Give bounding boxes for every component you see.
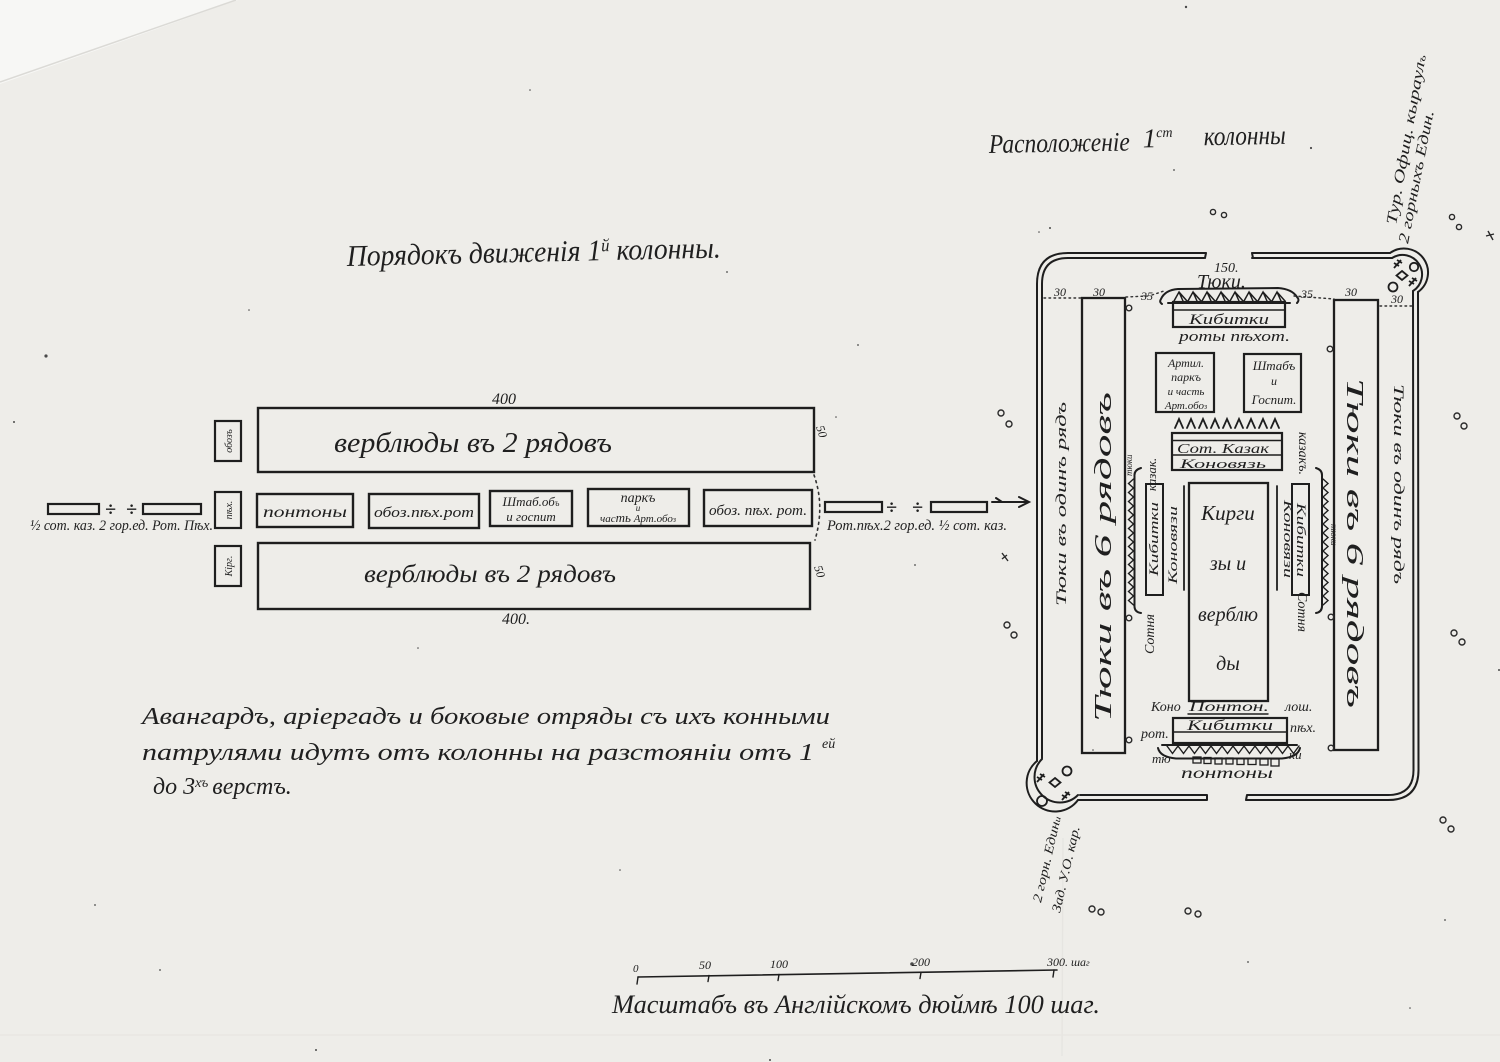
svg-text:Тюки въ одинъ рядъ: Тюки въ одинъ рядъ: [1054, 402, 1070, 606]
svg-text:зы и: зы и: [1209, 553, 1246, 575]
svg-text:Сотня: Сотня: [1294, 592, 1309, 632]
svg-text:Кибитки: Кибитки: [1188, 312, 1269, 328]
svg-text:30: 30: [1344, 285, 1357, 299]
svg-text:Авангардъ, аріергадъ и боковые: Авангардъ, аріергадъ и боковые отряды съ…: [140, 704, 830, 730]
svg-text:÷: ÷: [886, 497, 897, 519]
svg-text:Госпит.: Госпит.: [1251, 392, 1297, 407]
svg-text:тю: тю: [1152, 751, 1171, 766]
svg-text:пѣх.: пѣх.: [224, 501, 235, 520]
svg-text:роты пѣхот.: роты пѣхот.: [1178, 329, 1290, 345]
svg-text:Кірг.: Кірг.: [224, 556, 235, 578]
svg-text:ды: ды: [1216, 653, 1240, 675]
svg-text:35: 35: [1300, 287, 1313, 301]
svg-text:верблюды въ 2 рядовъ: верблюды въ 2 рядовъ: [334, 428, 612, 459]
svg-text:колонны: колонны: [1203, 120, 1286, 151]
svg-text:Сотня: Сотня: [1143, 614, 1158, 654]
svg-text:Расположеніе: Расположеніе: [988, 127, 1130, 159]
svg-text:ки: ки: [1289, 747, 1302, 762]
svg-text:казакъ.: казакъ.: [1295, 432, 1310, 475]
svg-text:Коновязь: Коновязь: [1178, 456, 1266, 471]
svg-text:Кибитки: Кибитки: [1294, 502, 1309, 578]
svg-text:лош.: лош.: [1284, 700, 1312, 715]
svg-text:обоз. пѣх. рот.: обоз. пѣх. рот.: [709, 503, 807, 519]
svg-text:400.: 400.: [502, 611, 530, 628]
svg-text:Коновязи: Коновязи: [1165, 505, 1180, 585]
svg-text:верблюды въ 2 рядовъ: верблюды въ 2 рядовъ: [364, 561, 616, 588]
svg-text:часть Арт.обоз: часть Арт.обоз: [600, 510, 676, 525]
svg-text:100: 100: [770, 957, 788, 971]
svg-text:патрулями идутъ отъ колонны на: патрулями идутъ отъ колонны на разстояні…: [142, 740, 814, 766]
svg-text:Сот. Казак: Сот. Казак: [1177, 442, 1270, 457]
svg-text:и часть: и часть: [1168, 386, 1205, 398]
svg-text:и: и: [1271, 374, 1277, 388]
svg-text:Кибитки: Кибитки: [1186, 718, 1273, 734]
svg-text:Коно: Коно: [1150, 700, 1181, 715]
svg-text:Масштабъ въ Англійскомъ дюймѣ: Масштабъ въ Англійскомъ дюймѣ 100 шаг.: [611, 990, 1100, 1019]
svg-text:Тюки въ 6 рядовъ: Тюки въ 6 рядовъ: [1341, 378, 1367, 708]
svg-text:Кибитки: Кибитки: [1146, 501, 1161, 577]
svg-text:тюки: тюки: [1124, 454, 1134, 476]
svg-text:30: 30: [1390, 292, 1403, 306]
svg-text:до 3хъверстъ.: до 3хъверстъ.: [153, 774, 292, 800]
svg-text:паркъ: паркъ: [1171, 370, 1201, 384]
svg-text:и: и: [636, 503, 641, 513]
svg-text:Штабъ: Штабъ: [1252, 358, 1296, 373]
svg-text:÷: ÷: [912, 497, 923, 519]
svg-text:Понтон.: Понтон.: [1187, 700, 1269, 715]
svg-text:Штаб.объ: Штаб.объ: [502, 494, 560, 509]
svg-text:30: 30: [1053, 285, 1066, 299]
svg-text:Рот.пѣх.2 гор.ед. ½ сот. каз.: Рот.пѣх.2 гор.ед. ½ сот. каз.: [826, 518, 1007, 534]
svg-text:обозъ: обозъ: [224, 429, 235, 453]
svg-text:ей: ей: [822, 737, 835, 752]
svg-text:и госпит: и госпит: [506, 509, 555, 524]
svg-text:тюки: тюки: [1329, 524, 1339, 546]
svg-text:обоз.пѣх.рот: обоз.пѣх.рот: [374, 505, 474, 521]
svg-text:50: 50: [699, 958, 711, 972]
svg-text:Коновязи: Коновязи: [1281, 498, 1296, 578]
svg-text:0: 0: [633, 963, 639, 975]
svg-text:Тюки въ одинъ рядъ: Тюки въ одинъ рядъ: [1390, 384, 1406, 584]
svg-text:понтоны: понтоны: [263, 504, 347, 521]
svg-text:200: 200: [912, 955, 930, 969]
svg-text:понтоны: понтоны: [1181, 765, 1273, 782]
svg-text:400: 400: [492, 391, 516, 408]
svg-text:½ сот. каз. 2 гор.ед. Рот. Пѣх: ½ сот. каз. 2 гор.ед. Рот. Пѣх.: [30, 518, 213, 534]
svg-text:Тюки въ 6 рядовъ: Тюки въ 6 рядовъ: [1091, 392, 1117, 722]
svg-text:рот.: рот.: [1140, 727, 1169, 742]
svg-text:верблю: верблю: [1198, 604, 1258, 626]
svg-text:пѣх.: пѣх.: [1290, 721, 1316, 736]
svg-text:30: 30: [1092, 285, 1105, 299]
svg-text:Кирги: Кирги: [1200, 501, 1255, 525]
svg-text:300. шаг: 300. шаг: [1046, 955, 1090, 969]
svg-text:Артил.: Артил.: [1167, 356, 1204, 370]
svg-text:Арт.обоз: Арт.обоз: [1164, 400, 1207, 412]
